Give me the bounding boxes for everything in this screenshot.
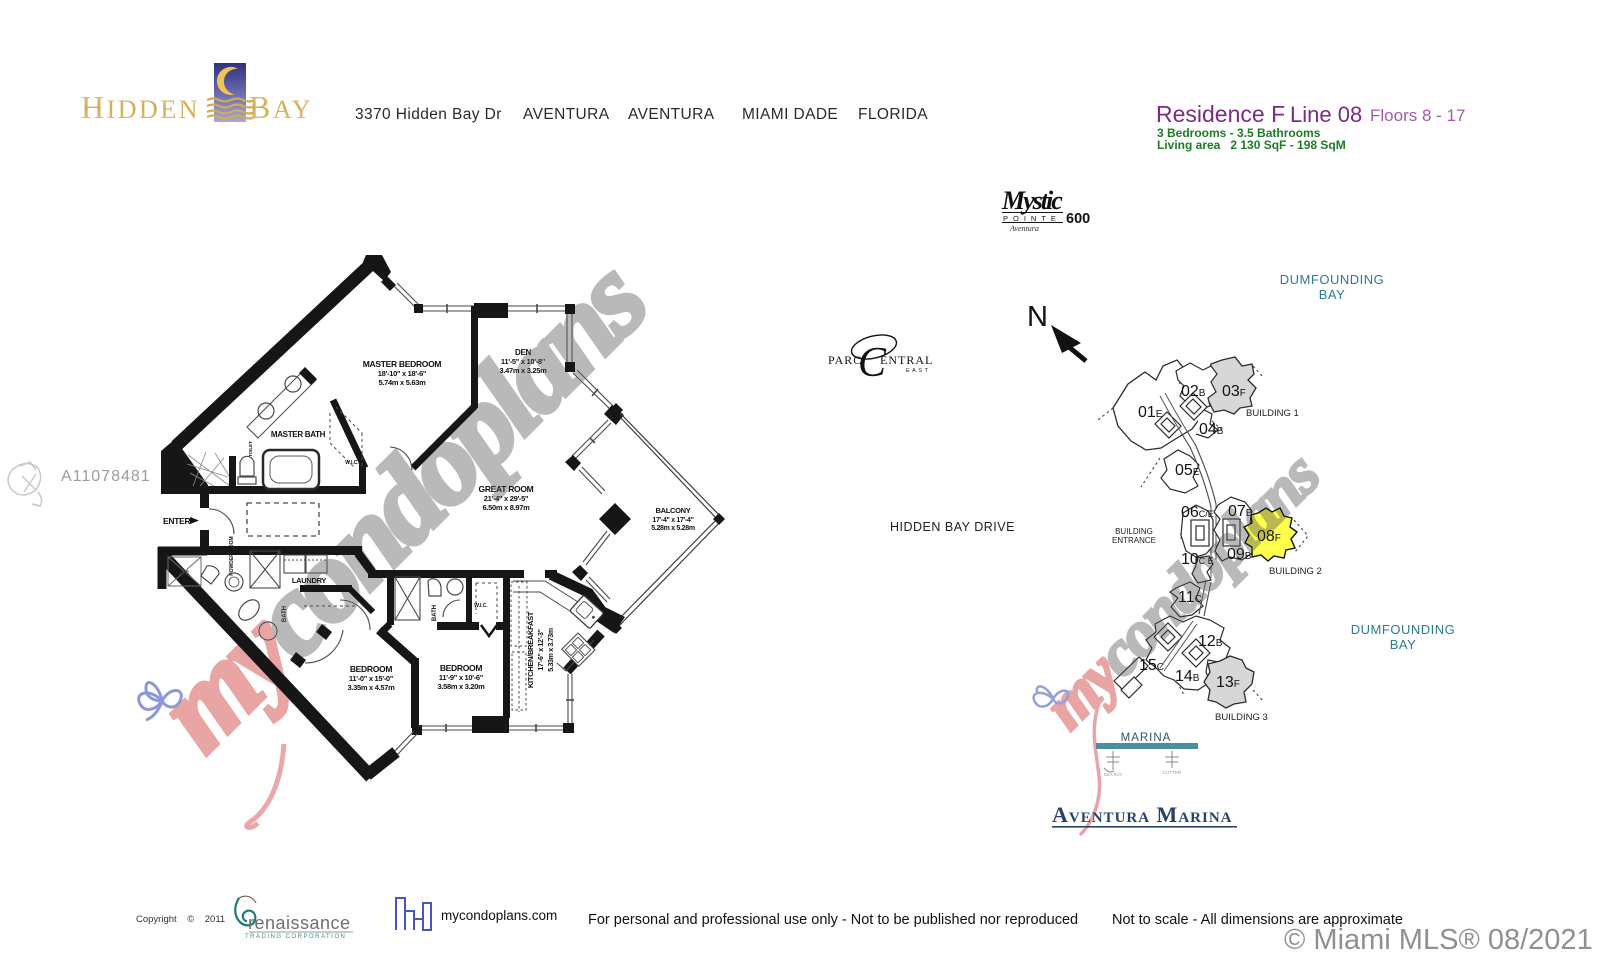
svg-text:EAST: EAST bbox=[906, 368, 930, 374]
svg-text:BAY: BAY bbox=[1319, 287, 1346, 302]
svg-text:Aventura: Aventura bbox=[1009, 224, 1039, 233]
svg-text:BUILDING 2: BUILDING 2 bbox=[1269, 566, 1322, 577]
svg-text:POWDER ROOM: POWDER ROOM bbox=[229, 536, 235, 575]
svg-text:POINTE: POINTE bbox=[1003, 214, 1061, 223]
svg-text:ENTER: ENTER bbox=[163, 516, 190, 526]
svg-text:17'-4" x 17'-4": 17'-4" x 17'-4" bbox=[652, 517, 693, 524]
svg-text:3.35m x 4.57m: 3.35m x 4.57m bbox=[348, 683, 396, 692]
svg-text:DUMFOUNDING: DUMFOUNDING bbox=[1280, 272, 1384, 287]
svg-text:600: 600 bbox=[1066, 211, 1090, 227]
svg-text:CUTTER: CUTTER bbox=[1163, 770, 1182, 775]
svg-text:W.I.C.: W.I.C. bbox=[474, 603, 488, 609]
svg-text:A/C: A/C bbox=[179, 571, 190, 577]
svg-text:5.28m x 5.28m: 5.28m x 5.28m bbox=[651, 525, 695, 532]
svg-text:HIDDEN BAY DRIVE: HIDDEN BAY DRIVE bbox=[890, 520, 1015, 534]
svg-text:BUILDING: BUILDING bbox=[1115, 527, 1153, 536]
svg-text:BAY: BAY bbox=[1390, 637, 1417, 652]
svg-text:11'-0" x 15'-0": 11'-0" x 15'-0" bbox=[349, 674, 394, 683]
svg-text:11'-9" x 10'-6": 11'-9" x 10'-6" bbox=[439, 673, 484, 682]
svg-text:ENTRANCE: ENTRANCE bbox=[1112, 536, 1156, 545]
svg-text:Mystic: Mystic bbox=[1001, 186, 1063, 215]
svg-text:MASTER BATH: MASTER BATH bbox=[271, 430, 326, 439]
svg-text:BEDROOM: BEDROOM bbox=[350, 664, 393, 674]
svg-text:Aventura Marina: Aventura Marina bbox=[1052, 802, 1233, 827]
svg-text:KITCHEN/BREAKFAST: KITCHEN/BREAKFAST bbox=[526, 611, 535, 688]
svg-text:BUILDING 1: BUILDING 1 bbox=[1246, 408, 1299, 419]
svg-text:MARINA: MARINA bbox=[1121, 732, 1172, 744]
svg-text:17'-6" x 12'-3": 17'-6" x 12'-3" bbox=[538, 629, 545, 670]
svg-text:04B: 04B bbox=[1199, 421, 1224, 438]
svg-text:DUMFOUNDING: DUMFOUNDING bbox=[1351, 622, 1455, 637]
svg-text:BATH: BATH bbox=[432, 605, 438, 621]
svg-text:5.33m x 3.73m: 5.33m x 3.73m bbox=[548, 628, 555, 672]
svg-text:mycondoplans: mycondoplans bbox=[133, 237, 670, 774]
svg-text:BUILDING 3: BUILDING 3 bbox=[1215, 712, 1268, 723]
svg-text:BALCONY: BALCONY bbox=[656, 506, 691, 515]
svg-text:mycondoplans.com: mycondoplans.com bbox=[441, 908, 557, 923]
svg-text:18'-10" x 18'-6": 18'-10" x 18'-6" bbox=[378, 369, 427, 378]
svg-text:N: N bbox=[1027, 301, 1048, 333]
svg-text:BEDROOM: BEDROOM bbox=[440, 663, 483, 673]
svg-text:TOILET: TOILET bbox=[248, 441, 253, 457]
svg-text:SEA RAY: SEA RAY bbox=[1104, 772, 1123, 777]
svg-text:MASTER BEDROOM: MASTER BEDROOM bbox=[363, 359, 442, 369]
svg-text:3.58m x 3.20m: 3.58m x 3.20m bbox=[438, 682, 486, 691]
svg-text:TRADING CORPORATION: TRADING CORPORATION bbox=[245, 934, 346, 938]
svg-text:5.74m x 5.63m: 5.74m x 5.63m bbox=[379, 378, 427, 387]
svg-text:ENTRAL: ENTRAL bbox=[880, 353, 933, 367]
svg-text:renaissance: renaissance bbox=[248, 913, 351, 933]
